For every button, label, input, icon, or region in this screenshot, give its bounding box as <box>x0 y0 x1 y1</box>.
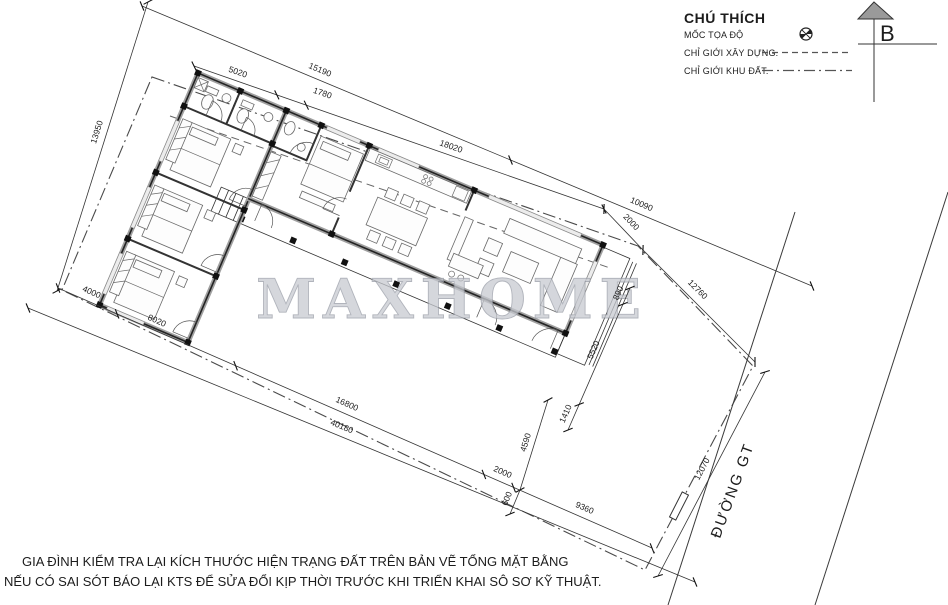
site-plan-drawing: ĐƯỜNG GT <box>0 0 948 605</box>
dimension-label: 4000 <box>81 283 103 300</box>
legend-item-label: MỐC TỌA ĐỘ <box>684 29 743 40</box>
dimension-label: 10090 <box>629 195 655 213</box>
survey-marker-icon <box>800 28 812 40</box>
north-arrow: B <box>858 2 937 102</box>
dimension-label: 9360 <box>574 499 596 516</box>
dimension-label: 40180 <box>329 417 355 435</box>
plan-svg: ĐƯỜNG GT <box>0 0 948 605</box>
dimension-label: 4590 <box>518 432 533 453</box>
legend-item-label: CHỈ GIỚI KHU ĐẤT. <box>684 65 769 76</box>
dimension-label: 12760 <box>686 277 710 301</box>
road-label: ĐƯỜNG GT <box>708 441 758 541</box>
legend: CHÚ THÍCH MỐC TỌA ĐỘ CHỈ GIỚI XÂY DỰNG. … <box>684 9 852 76</box>
watermark: MAXHOME <box>256 267 648 331</box>
dimension-label: 600 <box>499 490 514 507</box>
note-line-1: GIA ĐÌNH KIỂM TRA LẠI KÍCH THƯỚC HIỆN TR… <box>22 554 568 569</box>
dimension-label: 1780 <box>312 85 333 101</box>
notes: GIA ĐÌNH KIỂM TRA LẠI KÍCH THƯỚC HIỆN TR… <box>4 554 601 589</box>
dimension-label: 1410 <box>557 403 574 425</box>
dimension-label: 13950 <box>88 119 105 145</box>
road: ĐƯỜNG GT <box>668 192 948 605</box>
dimension-label: 15190 <box>307 60 333 78</box>
note-line-2: NẾU CÓ SAI SÓT BÁO LẠI KTS ĐỂ SỬA ĐỔI KỊ… <box>4 574 601 589</box>
dimension-label: 5520 <box>585 339 602 361</box>
dimension-label: 2000 <box>492 463 514 480</box>
north-label: B <box>880 21 895 46</box>
boundary-marker <box>670 492 689 520</box>
dimension-label: 2000 <box>621 212 641 233</box>
legend-title: CHÚ THÍCH <box>684 9 766 26</box>
dimension-label: 5020 <box>227 64 248 80</box>
